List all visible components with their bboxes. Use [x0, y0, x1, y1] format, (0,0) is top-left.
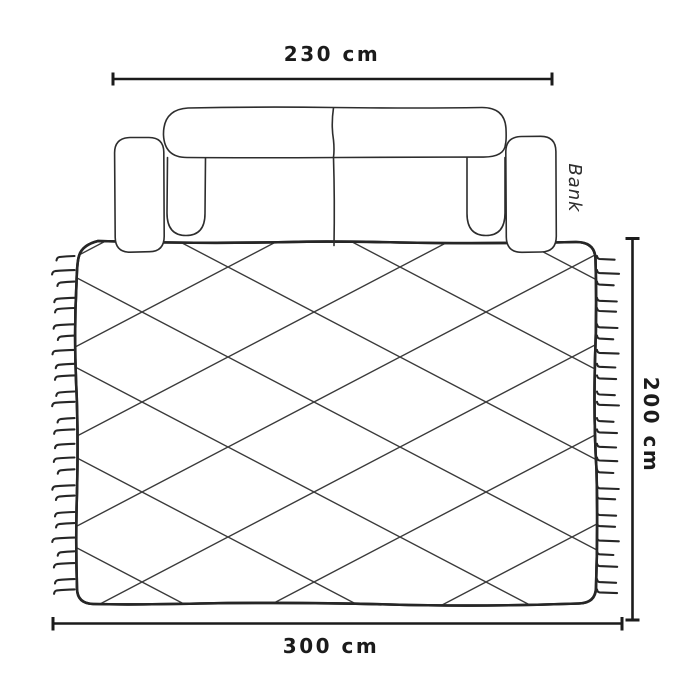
sofa-illustration	[115, 107, 557, 252]
dimension-label-rug-width: 200 cm	[639, 377, 663, 473]
dimension-rug-width	[626, 239, 640, 621]
dimension-label-sofa-width: 230 cm	[284, 42, 380, 66]
sofa-inner-arm-right	[467, 158, 505, 236]
sofa-inner-arm-left	[167, 158, 206, 236]
diagram-canvas: Bank 230 cm 200 cm 300 cm	[0, 0, 700, 700]
rug-illustration	[52, 241, 619, 606]
dimension-sofa-width	[113, 73, 552, 86]
dimension-label-rug-length: 300 cm	[283, 634, 379, 658]
sofa-seat-divider	[334, 158, 335, 246]
rug-fringe-right	[597, 256, 619, 593]
rug-size-guide-diagram: Bank 230 cm 200 cm 300 cm	[0, 0, 700, 700]
rug-fringe-left	[52, 256, 74, 594]
dimension-rug-length	[53, 617, 622, 631]
rug-diamond-pattern	[75, 241, 598, 606]
sofa-armrest-right	[506, 136, 557, 252]
sofa-back-cushion	[163, 107, 506, 158]
sofa-label: Bank	[564, 163, 585, 213]
sofa-armrest-left	[115, 138, 165, 253]
